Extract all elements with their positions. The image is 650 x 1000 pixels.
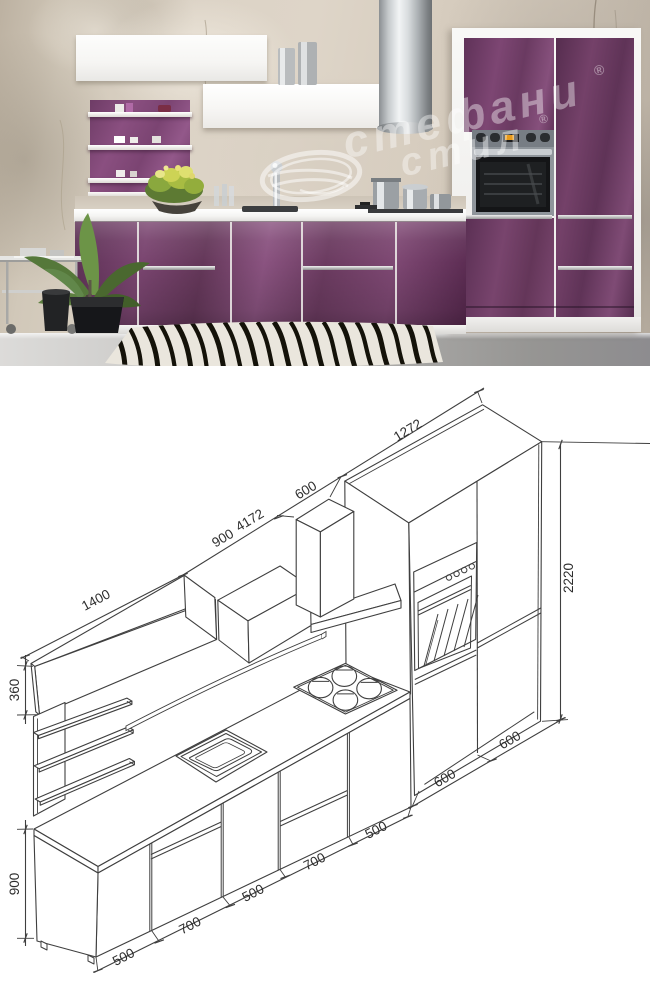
svg-text:900: 900	[7, 873, 22, 896]
svg-text:600: 600	[292, 478, 319, 502]
svg-text:900: 900	[209, 526, 236, 550]
svg-text:2220: 2220	[561, 563, 576, 593]
svg-text:1400: 1400	[79, 586, 113, 613]
svg-text:4172: 4172	[233, 506, 266, 534]
svg-text:360: 360	[7, 679, 22, 702]
